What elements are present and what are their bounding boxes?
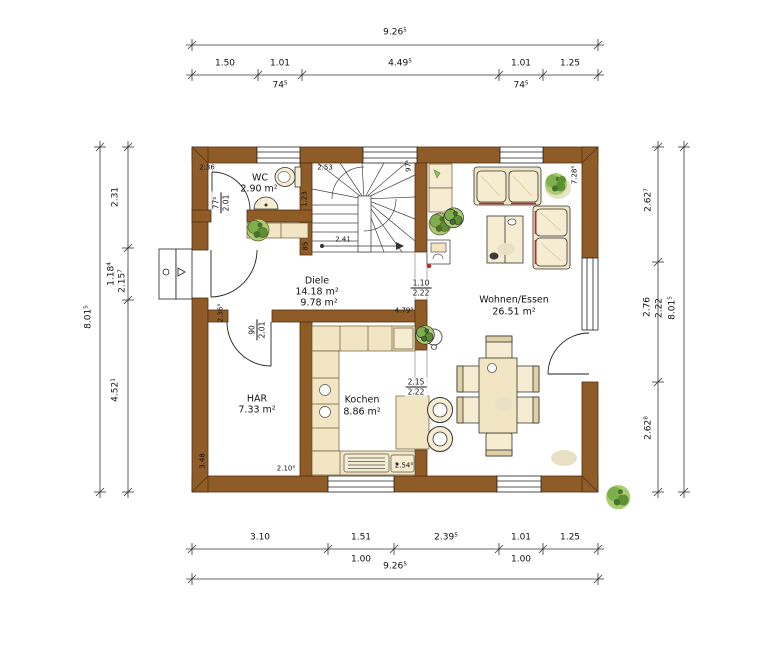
room-name-wohnen-essen: Wohnen/Essen <box>479 295 549 305</box>
dim-bottom-seg-4: 1.01 <box>511 534 531 543</box>
wall-label-kochen-bottom: 2.54⁵ <box>395 463 413 470</box>
wall-label-stairs-run: 2.41 <box>335 237 351 244</box>
room-area-diele-top: 14.18 m² <box>295 287 338 297</box>
wall-label-wohnen-right: 7.28⁵ <box>572 166 579 184</box>
dim-bottom-seg-1: 3.10 <box>250 534 270 543</box>
dim-left-seg-1: 2.31 <box>112 187 121 207</box>
plant-icon <box>444 208 464 228</box>
plant-icon <box>606 485 630 509</box>
room-area-diele-bottom: 9.78 m² <box>300 298 337 308</box>
floor-plan-page: 9.26⁵ 1.50 1.01 4.49⁵ 1.01 1.25 74⁵ 74⁵ … <box>0 0 776 650</box>
entrance-stoop <box>159 249 192 299</box>
dim-right-seg-2: 2.76 <box>644 297 653 317</box>
dim-bottom-total: 9.26⁵ <box>383 563 407 572</box>
room-name-kochen: Kochen <box>345 395 380 405</box>
room-area-har: 7.33 m² <box>238 405 275 415</box>
opening-height: 2.22 <box>406 387 427 397</box>
dim-top-sub-left: 74⁵ <box>272 82 287 91</box>
door-label-wc: 77⁵ 2.01 <box>212 192 231 215</box>
plant-icon <box>545 173 567 195</box>
door-height: 2.01 <box>221 193 231 214</box>
dim-top-total: 9.26⁵ <box>383 29 407 38</box>
door-label-har: 90 2.01 <box>248 319 267 342</box>
dim-right-seg-1: 2.62⁷ <box>645 188 654 212</box>
dim-top-seg-1: 1.50 <box>215 60 235 69</box>
corner-plant <box>545 173 571 199</box>
dim-top-seg-2: 1.01 <box>270 60 290 69</box>
plant-icon <box>416 326 435 345</box>
wall-label-wc-top: 2.36 <box>199 165 215 172</box>
dim-right-seg-3: 2.62⁸ <box>645 416 654 440</box>
wall-label-har-left: 3.48 <box>200 453 207 469</box>
dim-top-seg-5: 1.25 <box>560 60 580 69</box>
door-width: 77⁵ <box>212 195 221 212</box>
wall-label-stairs-top: 2.53 <box>317 165 333 172</box>
door-height: 2.01 <box>257 320 267 341</box>
wall-label-entry: 2.36⁵ <box>218 304 225 322</box>
dim-left-inner: 2.15⁷ <box>119 269 128 293</box>
dim-left-total: 8.01⁵ <box>85 305 94 329</box>
room-name-diele: Diele <box>305 276 329 286</box>
dim-left-seg-3: 4.52¹ <box>112 378 121 402</box>
dim-bottom-seg-2: 1.51 <box>351 534 371 543</box>
room-area-wc: 2.90 m² <box>240 184 277 194</box>
wall-label-stairs-right: 97³ <box>406 160 413 172</box>
wall-label-diele-stair: 85 <box>303 242 310 251</box>
room-name-har: HAR <box>247 394 267 404</box>
coffee-table <box>444 208 523 263</box>
room-area-kochen: 8.86 m² <box>343 407 380 417</box>
bar-stools <box>428 398 453 452</box>
plant-icon <box>247 219 269 241</box>
opening-label-diele-wohnen: 1.10 2.22 <box>410 279 433 298</box>
dim-left-seg-2: 1.18⁴ <box>108 262 117 286</box>
dim-top-seg-4: 1.01 <box>511 60 531 69</box>
door-width: 90 <box>248 323 257 337</box>
opening-width: 1.10 <box>411 279 432 288</box>
dim-bottom-seg-3: 2.39⁵ <box>434 534 458 543</box>
wall-label-har-bottom: 2.10⁵ <box>277 466 295 473</box>
opening-width: 2.15 <box>406 378 427 387</box>
dim-right-total: 8.01⁵ <box>669 296 678 320</box>
room-area-wohnen-essen: 26.51 m² <box>492 307 535 317</box>
stairs <box>312 163 415 252</box>
dim-bottom-sub-left: 1.00 <box>351 556 371 565</box>
floor-plan-drawing <box>0 0 776 650</box>
dim-bottom-sub-right: 1.00 <box>511 556 531 565</box>
opening-label-kochen-essen: 2.15 2.22 <box>405 378 428 397</box>
dim-right-inner: 2.22 <box>656 298 665 318</box>
room-name-wc: WC <box>252 173 268 183</box>
dim-top-sub-right: 74⁵ <box>513 82 528 91</box>
dim-bottom-seg-5: 1.25 <box>560 534 580 543</box>
wall-label-diele-right: 4.79⁵ <box>395 308 413 315</box>
dim-top-seg-3: 4.49⁵ <box>388 60 412 69</box>
wall-label-wc-right: 1.23 <box>302 191 309 207</box>
opening-height: 2.22 <box>411 288 432 298</box>
